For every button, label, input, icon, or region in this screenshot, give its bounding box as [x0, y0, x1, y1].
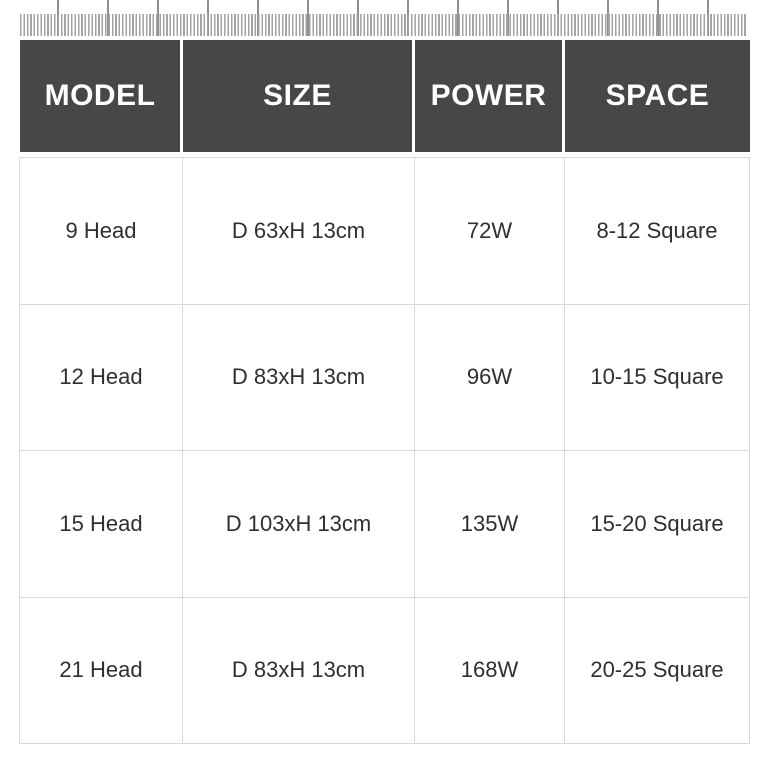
- table-cell-model: 15 Head: [20, 451, 183, 598]
- table-cell-size: D 83xH 13cm: [183, 305, 415, 452]
- table-cell-space: 15-20 Square: [565, 451, 750, 598]
- table-cell-size: D 83xH 13cm: [183, 598, 415, 745]
- table-cell-space: 10-15 Square: [565, 305, 750, 452]
- table-cell-size: D 63xH 13cm: [183, 158, 415, 305]
- column-header-space: SPACE: [565, 40, 750, 152]
- table-cell-power: 72W: [415, 158, 565, 305]
- table-cell-space: 8-12 Square: [565, 158, 750, 305]
- spec-sheet: MODEL SIZE POWER SPACE 9 Head D 63xH 13c…: [0, 0, 759, 759]
- table-cell-model: 12 Head: [20, 305, 183, 452]
- column-header-power: POWER: [415, 40, 565, 152]
- table-cell-model: 9 Head: [20, 158, 183, 305]
- table-cell-power: 168W: [415, 598, 565, 745]
- table-header-row: MODEL SIZE POWER SPACE: [20, 40, 750, 152]
- column-header-model: MODEL: [20, 40, 183, 152]
- table-cell-model: 21 Head: [20, 598, 183, 745]
- column-header-size: SIZE: [183, 40, 415, 152]
- table-cell-size: D 103xH 13cm: [183, 451, 415, 598]
- ruler-decoration: [20, 0, 746, 36]
- table-cell-power: 135W: [415, 451, 565, 598]
- table-cell-space: 20-25 Square: [565, 598, 750, 745]
- table-body: 9 Head D 63xH 13cm 72W 8-12 Square 12 He…: [19, 157, 751, 744]
- table-cell-power: 96W: [415, 305, 565, 452]
